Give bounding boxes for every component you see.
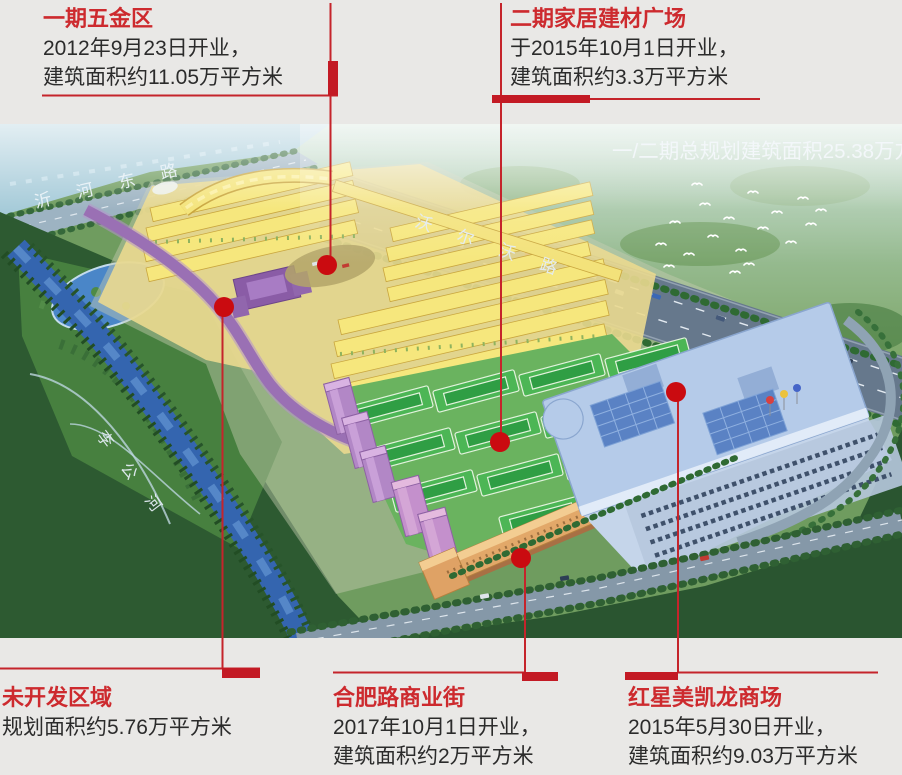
accent-bar-phase1 xyxy=(328,61,338,96)
callout-undeveloped-title: 未开发区域 xyxy=(2,683,232,713)
infographic-canvas: 沂河东路 沃尔沃路 李公河 一/二期总规划建筑面积25.38万方 xyxy=(0,0,902,775)
callout-phase2-title: 二期家居建材广场 xyxy=(510,4,739,34)
callout-phase1-title: 一期五金区 xyxy=(43,4,283,34)
accent-bar-phase2 xyxy=(492,95,590,103)
accent-bar-undeveloped xyxy=(222,668,260,678)
accent-bar-hefei-road xyxy=(522,672,558,681)
callout-redstar-title: 红星美凯龙商场 xyxy=(628,683,858,713)
callout-hefei-road: 合肥路商业街 2017年10月1日开业， 建筑面积约2万平方米 xyxy=(333,683,541,771)
callout-phase1-line2: 建筑面积约11.05万平方米 xyxy=(43,63,283,92)
callout-hefei-road-line2: 建筑面积约2万平方米 xyxy=(333,742,541,771)
callout-phase2: 二期家居建材广场 于2015年10月1日开业， 建筑面积约3.3万平方米 xyxy=(510,4,739,92)
site-plan-rendering: 沂河东路 沃尔沃路 李公河 一/二期总规划建筑面积25.38万方 xyxy=(0,124,902,638)
total-area-note: 一/二期总规划建筑面积25.38万方 xyxy=(612,140,902,163)
accent-bar-redstar xyxy=(625,672,678,680)
callout-phase2-line2: 建筑面积约3.3万平方米 xyxy=(510,63,739,92)
callout-redstar-line1: 2015年5月30日开业， xyxy=(628,713,858,742)
callout-hefei-road-title: 合肥路商业街 xyxy=(333,683,541,713)
callout-phase1: 一期五金区 2012年9月23日开业， 建筑面积约11.05万平方米 xyxy=(43,4,283,92)
callout-phase2-line1: 于2015年10月1日开业， xyxy=(510,34,739,63)
callout-undeveloped-line1: 规划面积约5.76万平方米 xyxy=(2,713,232,742)
callout-undeveloped: 未开发区域 规划面积约5.76万平方米 xyxy=(2,683,232,742)
callout-phase1-line1: 2012年9月23日开业， xyxy=(43,34,283,63)
callout-redstar: 红星美凯龙商场 2015年5月30日开业， 建筑面积约9.03万平方米 xyxy=(628,683,858,771)
callout-hefei-road-line1: 2017年10月1日开业， xyxy=(333,713,541,742)
site-aerial-map: 沂河东路 沃尔沃路 李公河 一/二期总规划建筑面积25.38万方 xyxy=(0,124,902,638)
callout-redstar-line2: 建筑面积约9.03万平方米 xyxy=(628,742,858,771)
